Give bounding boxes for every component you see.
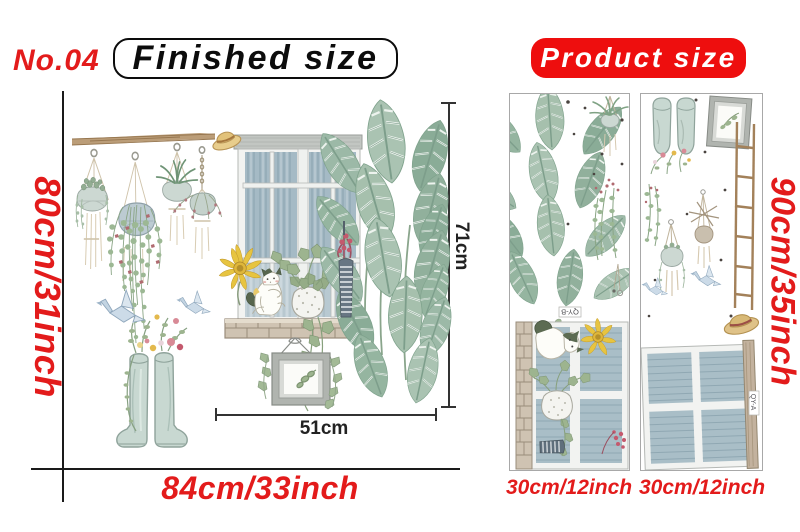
svg-text:QY-B: QY-B	[561, 307, 579, 316]
svg-text:QY-A: QY-A	[749, 394, 756, 411]
